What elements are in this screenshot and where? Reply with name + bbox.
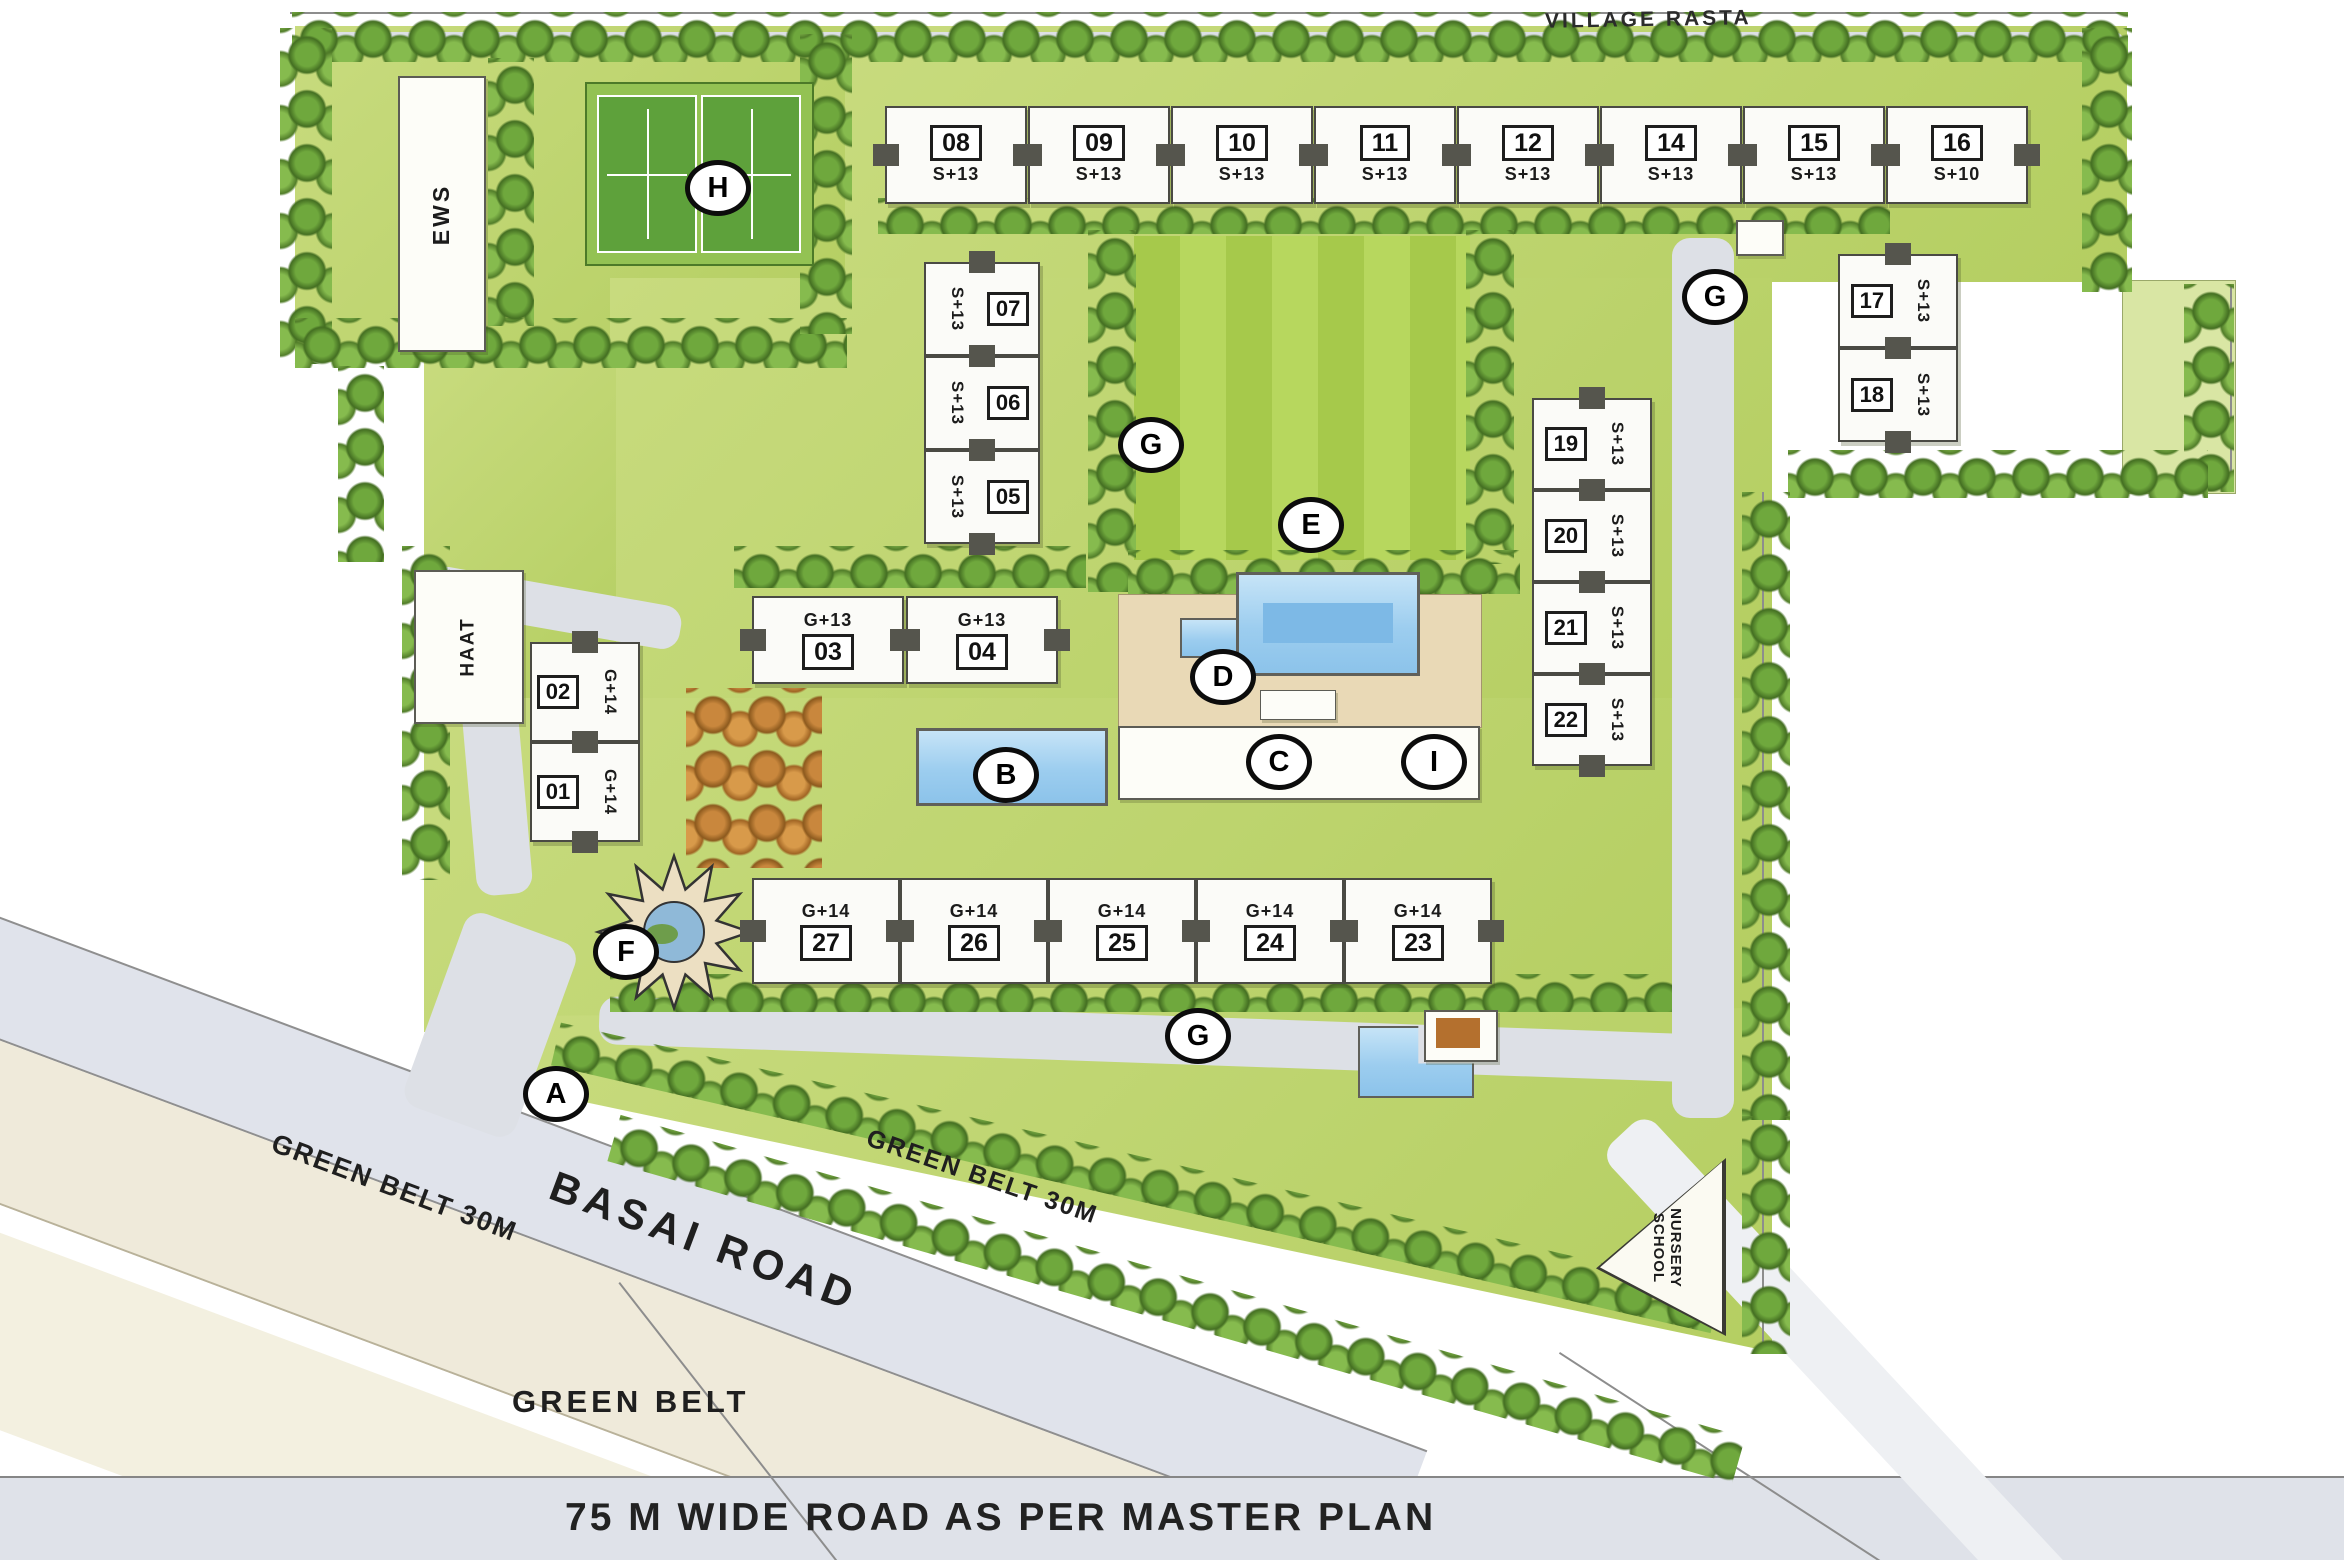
tower-number: 21 <box>1545 611 1587 644</box>
building-core <box>969 251 995 273</box>
tower-08: 08S+13 <box>885 106 1027 204</box>
tower-number: 09 <box>1073 125 1125 162</box>
building-core <box>873 144 899 166</box>
tower-16: 16S+10 <box>1886 106 2028 204</box>
tower-19: 19S+13 <box>1532 398 1652 490</box>
tower-14: 14S+13 <box>1600 106 1742 204</box>
tower-15: 15S+13 <box>1743 106 1885 204</box>
tower-floor-label: G+14 <box>802 901 851 922</box>
tower-floor-label: G+14 <box>600 669 620 715</box>
building-core <box>969 533 995 555</box>
tower-number: 25 <box>1096 925 1148 962</box>
tower-floor-label: S+13 <box>1791 164 1838 185</box>
tower-26: G+1426 <box>900 878 1048 984</box>
tower-number: 22 <box>1545 703 1587 736</box>
tower-floor-label: G+14 <box>600 769 620 815</box>
garden-pavilion <box>1424 1010 1498 1062</box>
tower-floor-label: S+13 <box>1362 164 1409 185</box>
main-swimming-pool <box>1236 572 1420 676</box>
building-core <box>1445 144 1471 166</box>
building-core <box>572 731 598 753</box>
building-core <box>1579 663 1605 685</box>
tower-04: G+1304 <box>906 596 1058 684</box>
tower-27: G+1427 <box>752 878 900 984</box>
tree-row <box>338 366 384 562</box>
pavilion-roof <box>1436 1018 1480 1048</box>
amenity-marker-G: G <box>1165 1008 1231 1064</box>
tower-floor-label: S+13 <box>947 381 967 425</box>
master-plan-road-label: 75 M WIDE ROAD AS PER MASTER PLAN <box>565 1496 1436 1540</box>
tower-number: 03 <box>802 634 854 671</box>
deck-sign-board <box>1260 690 1336 720</box>
tower-floor-label: S+13 <box>1607 698 1627 742</box>
building-core <box>1579 479 1605 501</box>
building-core <box>1159 144 1185 166</box>
tower-number: 11 <box>1360 125 1410 162</box>
amenity-marker-E: E <box>1278 497 1344 553</box>
tower-number: 20 <box>1545 519 1587 552</box>
tower-floor-label: S+13 <box>1607 514 1627 558</box>
building-core <box>740 629 766 651</box>
tower-number: 26 <box>948 925 1000 962</box>
tower-09: 09S+13 <box>1028 106 1170 204</box>
tower-18: 18S+13 <box>1838 348 1958 442</box>
building-core <box>1874 144 1900 166</box>
tennis-court-1 <box>597 95 697 253</box>
tower-10: 10S+13 <box>1171 106 1313 204</box>
building-core <box>740 920 766 942</box>
ews-label: EWS <box>428 183 455 244</box>
tower-05: S+1305 <box>924 450 1040 544</box>
amenity-marker-A: A <box>523 1066 589 1122</box>
tower-floor-label: G+13 <box>804 610 853 631</box>
tower-number: 24 <box>1244 925 1296 962</box>
tower-12: 12S+13 <box>1457 106 1599 204</box>
kiosk-building <box>1736 220 1784 256</box>
building-core <box>572 631 598 653</box>
tower-06: S+1306 <box>924 356 1040 450</box>
haat-building: HAAT <box>414 570 524 724</box>
building-core <box>1302 144 1328 166</box>
building-core <box>1885 431 1911 453</box>
building-core <box>1184 920 1210 942</box>
tower-floor-label: S+13 <box>1607 422 1627 466</box>
tower-number: 02 <box>537 675 579 708</box>
tower-floor-label: S+13 <box>947 475 967 519</box>
tower-number: 06 <box>987 386 1029 419</box>
tree-row <box>1466 230 1514 564</box>
building-core <box>888 920 914 942</box>
tower-number: 10 <box>1216 125 1268 162</box>
tree-row <box>292 12 2128 62</box>
building-core <box>969 345 995 367</box>
village-rasta-label: VILLAGE RASTA <box>1545 6 1752 34</box>
ews-building: EWS <box>398 76 486 352</box>
tower-number: 07 <box>987 292 1029 325</box>
tower-number: 18 <box>1851 378 1893 411</box>
tower-floor-label: G+13 <box>958 610 1007 631</box>
tree-row <box>280 28 332 364</box>
building-core <box>969 439 995 461</box>
tower-number: 27 <box>800 925 852 962</box>
tower-floor-label: G+14 <box>1246 901 1295 922</box>
tower-number: 16 <box>1931 125 1983 162</box>
building-core <box>2014 144 2040 166</box>
tennis-court-center-line <box>751 109 753 238</box>
tower-07: S+1307 <box>924 262 1040 356</box>
tower-floor-label: S+13 <box>933 164 980 185</box>
building-core <box>1579 755 1605 777</box>
tower-number: 23 <box>1392 925 1444 962</box>
building-core <box>1579 571 1605 593</box>
building-core <box>1885 337 1911 359</box>
tower-number: 17 <box>1851 284 1893 317</box>
tower-floor-label: G+14 <box>1394 901 1443 922</box>
building-core <box>894 629 920 651</box>
tree-row <box>1088 230 1136 592</box>
tower-11: 11S+13 <box>1314 106 1456 204</box>
green-belt-label: GREEN BELT <box>512 1384 750 1420</box>
tower-floor-label: S+13 <box>1913 279 1933 323</box>
tower-20: 20S+13 <box>1532 490 1652 582</box>
tower-floor-label: S+13 <box>1219 164 1266 185</box>
building-core <box>1332 920 1358 942</box>
pool-lap-lane <box>1263 603 1393 643</box>
tree-row <box>734 546 1086 588</box>
tower-floor-label: G+14 <box>1098 901 1147 922</box>
amenity-marker-I: I <box>1401 734 1467 790</box>
amenity-marker-F: F <box>593 924 659 980</box>
tower-22: 22S+13 <box>1532 674 1652 766</box>
building-core <box>1885 243 1911 265</box>
tree-row <box>1742 1116 1790 1354</box>
amenity-marker-G: G <box>1118 417 1184 473</box>
amenity-marker-B: B <box>973 747 1039 803</box>
tower-floor-label: S+10 <box>1934 164 1981 185</box>
tower-number: 01 <box>537 775 579 808</box>
tower-floor-label: G+14 <box>950 901 999 922</box>
tree-row <box>1788 450 2208 498</box>
tower-number: 19 <box>1545 427 1587 460</box>
tree-row <box>2082 28 2132 292</box>
tower-floor-label: S+13 <box>947 287 967 331</box>
amenity-marker-D: D <box>1190 649 1256 705</box>
tower-floor-label: S+13 <box>1913 373 1933 417</box>
tower-01: 01G+14 <box>530 742 640 842</box>
building-core <box>572 831 598 853</box>
amenity-marker-C: C <box>1246 734 1312 790</box>
building-core <box>1731 144 1757 166</box>
tower-floor-label: S+13 <box>1607 606 1627 650</box>
tower-number: 15 <box>1788 125 1840 162</box>
tree-row <box>488 58 534 326</box>
tower-25: G+1425 <box>1048 878 1196 984</box>
nursery-school-label: NURSERY SCHOOL <box>1607 1193 1727 1303</box>
tower-floor-label: S+13 <box>1505 164 1552 185</box>
building-core <box>1588 144 1614 166</box>
building-core <box>1036 920 1062 942</box>
tower-21: 21S+13 <box>1532 582 1652 674</box>
tower-23: G+1423 <box>1344 878 1492 984</box>
amenity-marker-H: H <box>685 160 751 216</box>
tower-number: 04 <box>956 634 1008 671</box>
tower-floor-label: S+13 <box>1648 164 1695 185</box>
building-core <box>1044 629 1070 651</box>
nursery-school-text: NURSERY SCHOOL <box>1650 1202 1684 1294</box>
building-core <box>1478 920 1504 942</box>
tower-24: G+1424 <box>1196 878 1344 984</box>
internal-road <box>1672 238 1734 1118</box>
tower-02: 02G+14 <box>530 642 640 742</box>
tower-number: 12 <box>1502 125 1554 162</box>
tree-row <box>686 688 822 868</box>
building-core <box>1579 387 1605 409</box>
tower-number: 14 <box>1645 125 1697 162</box>
tower-17: 17S+13 <box>1838 254 1958 348</box>
haat-label: HAAT <box>458 617 480 676</box>
tennis-court-center-line <box>647 109 649 238</box>
tower-number: 08 <box>930 125 982 162</box>
tree-row <box>295 318 847 368</box>
site-master-plan: EWS HAAT NURSERY SCHOOL VILLAGE RASTA BA… <box>0 0 2344 1563</box>
tower-floor-label: S+13 <box>1076 164 1123 185</box>
building-core <box>1016 144 1042 166</box>
tower-03: G+1303 <box>752 596 904 684</box>
tower-number: 05 <box>987 480 1029 513</box>
tree-row <box>1742 492 1790 1120</box>
amenity-marker-G: G <box>1682 269 1748 325</box>
